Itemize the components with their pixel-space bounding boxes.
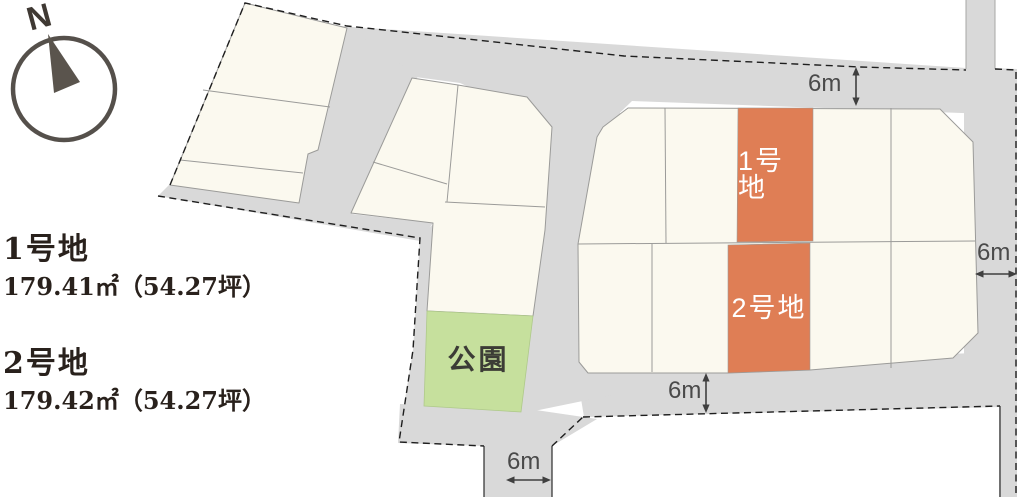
park-label: 公園 (424, 311, 533, 409)
dim-label-southwest-road: 6m (507, 450, 540, 474)
dim-label-top-road: 6m (808, 72, 841, 96)
dim-label-bottom-road: 6m (668, 379, 701, 403)
legend-lot2-name: 2号地 (3, 338, 90, 382)
lot-1-label: 1号地 (738, 108, 813, 241)
legend-lot1-name: 1号地 (3, 224, 90, 268)
compass-needle (48, 34, 80, 93)
legend-lot2-area: 179.42㎡（54.27坪） (3, 381, 266, 416)
lot-2-label: 2号地 (728, 243, 810, 373)
site-plan: N 1号地 179.41㎡（54.27坪） 2号地 179.42㎡（54.27坪… (0, 0, 1024, 497)
legend-lot1-area: 179.41㎡（54.27坪） (3, 267, 266, 302)
compass-circle (13, 38, 115, 140)
compass (13, 34, 115, 140)
dim-label-right-road: 6m (977, 241, 1010, 265)
road-southwest-stub (398, 404, 597, 497)
site-plan-svg (0, 0, 1024, 497)
